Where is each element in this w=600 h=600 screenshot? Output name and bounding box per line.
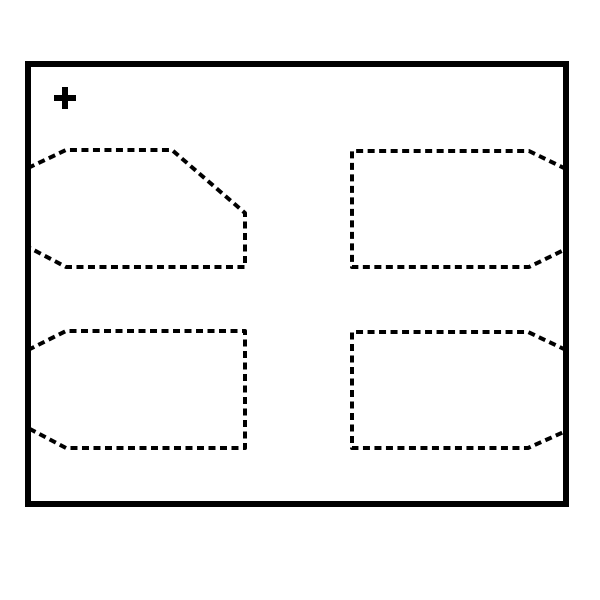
pad-outline-bottom-left [28,331,245,448]
pad-outline-top-left [28,150,245,267]
pin1-plus-icon [54,87,76,109]
package-outline-figure [0,0,600,600]
pad-outline-top-right [352,151,566,267]
package-drawing [0,0,600,600]
package-body-outline [28,64,566,504]
pad-outline-bottom-right [352,332,566,448]
